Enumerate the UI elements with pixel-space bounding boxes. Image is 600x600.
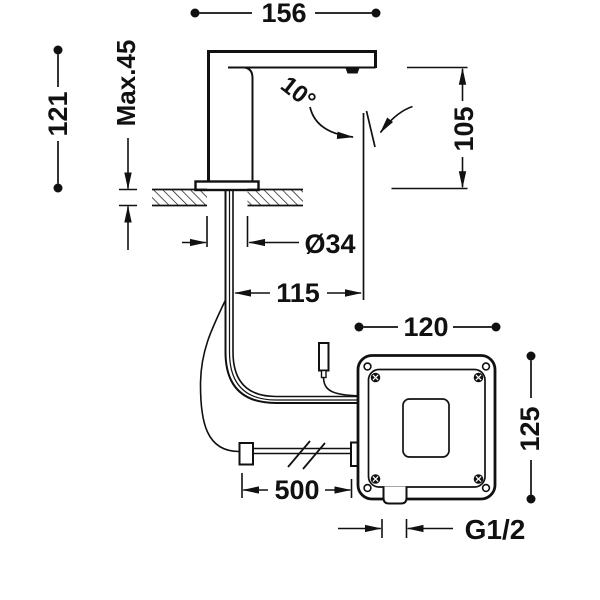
control-box xyxy=(358,356,495,500)
label-thread: G1/2 xyxy=(465,514,526,545)
dim-stream-angle-10: 10° xyxy=(275,71,412,137)
label-stream-angle: 10° xyxy=(275,71,320,115)
tilted-stream-line xyxy=(367,111,376,147)
label-total-height: 121 xyxy=(43,91,73,136)
label-box-width: 120 xyxy=(403,312,448,342)
label-spout-reach: 156 xyxy=(261,0,306,28)
dim-deck-thickness-max45: Max.45 xyxy=(111,40,141,250)
dim-spout-height-105: 105 xyxy=(392,68,480,189)
dim-spout-reach-156: 156 xyxy=(191,0,381,28)
dim-stream-offset-115: 115 xyxy=(235,278,361,308)
technical-drawing: 10° 156 121 Max.45 xyxy=(0,0,600,600)
dim-thread-g12: G1/2 xyxy=(338,514,525,545)
label-hole-diameter: Ø34 xyxy=(304,229,355,259)
faucet-aerator xyxy=(346,68,360,74)
drawing-canvas: 10° 156 121 Max.45 xyxy=(0,0,600,600)
dim-hole-diameter-34: Ø34 xyxy=(182,216,356,259)
label-deck-thickness: Max.45 xyxy=(111,40,141,127)
label-box-height: 125 xyxy=(515,406,545,451)
label-spout-height: 105 xyxy=(449,106,479,151)
mounting-deck xyxy=(152,190,303,206)
label-hose-length: 500 xyxy=(274,475,319,505)
cable-plug xyxy=(240,443,254,465)
hose-break-symbol xyxy=(288,441,325,469)
box-outlet xyxy=(384,487,407,504)
dim-total-height-121: 121 xyxy=(43,46,73,193)
dim-box-height-125: 125 xyxy=(515,352,545,504)
dim-hose-length-500: 500 xyxy=(242,473,352,505)
label-stream-offset: 115 xyxy=(276,278,320,308)
drawing-root: 10° 156 121 Max.45 xyxy=(43,0,545,545)
dim-box-width-120: 120 xyxy=(355,312,501,342)
